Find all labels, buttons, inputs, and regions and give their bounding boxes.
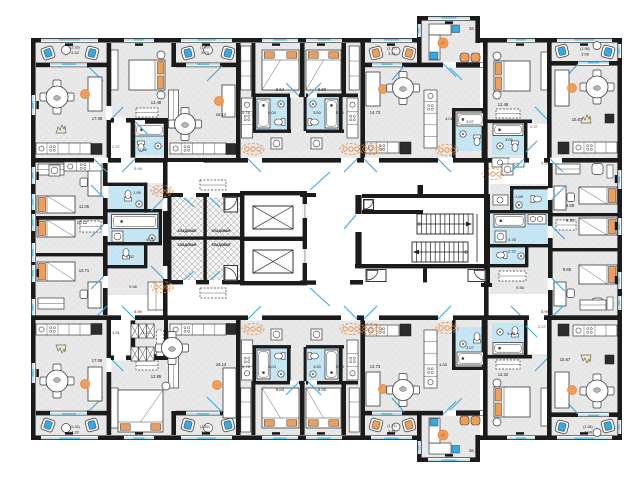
svg-text:3.07: 3.07 bbox=[466, 119, 475, 124]
svg-text:4.32: 4.32 bbox=[71, 430, 80, 435]
svg-text:1.91: 1.91 bbox=[112, 330, 121, 335]
svg-text:17.09: 17.09 bbox=[92, 358, 103, 363]
svg-text:5.78: 5.78 bbox=[242, 364, 251, 369]
svg-text:9.30: 9.30 bbox=[566, 218, 575, 223]
svg-text:1.99: 1.99 bbox=[133, 190, 142, 195]
svg-text:5.99: 5.99 bbox=[541, 161, 550, 166]
svg-text:5.45: 5.45 bbox=[336, 110, 345, 115]
svg-text:9.88: 9.88 bbox=[566, 203, 575, 208]
svg-text:5.99: 5.99 bbox=[541, 309, 550, 314]
svg-text:16.11: 16.11 bbox=[469, 26, 480, 31]
svg-text:3.78: 3.78 bbox=[201, 430, 210, 435]
svg-text:4.04: 4.04 bbox=[268, 110, 277, 115]
svg-text:8.80: 8.80 bbox=[318, 387, 327, 392]
svg-text:1.99: 1.99 bbox=[515, 194, 524, 199]
svg-text:(1.89): (1.89) bbox=[200, 46, 209, 50]
svg-text:4.08: 4.08 bbox=[445, 116, 454, 121]
svg-text:(1.98): (1.98) bbox=[580, 47, 589, 51]
svg-text:2.37: 2.37 bbox=[530, 124, 539, 129]
svg-text:4.76: 4.76 bbox=[508, 237, 517, 242]
svg-text:9.36: 9.36 bbox=[516, 285, 525, 290]
svg-text:16.14: 16.14 bbox=[216, 112, 227, 117]
svg-text:КЛАДОВАЯ: КЛАДОВАЯ bbox=[178, 243, 197, 247]
svg-text:12.32: 12.32 bbox=[498, 372, 509, 377]
svg-text:3.48: 3.48 bbox=[507, 331, 516, 336]
svg-text:3.06: 3.06 bbox=[505, 137, 514, 142]
svg-text:4.32: 4.32 bbox=[71, 50, 80, 55]
svg-text:10.71: 10.71 bbox=[79, 268, 90, 273]
svg-text:15.67: 15.67 bbox=[560, 357, 571, 362]
svg-text:3.41: 3.41 bbox=[388, 51, 397, 56]
svg-text:4.08: 4.08 bbox=[439, 362, 448, 367]
svg-text:5.99: 5.99 bbox=[134, 166, 143, 171]
svg-text:(1.71): (1.71) bbox=[387, 47, 396, 51]
svg-text:15.67: 15.67 bbox=[572, 117, 583, 122]
svg-text:(1.98): (1.98) bbox=[583, 425, 592, 429]
svg-text:2.27: 2.27 bbox=[538, 324, 547, 329]
svg-text:14.73: 14.73 bbox=[370, 364, 381, 369]
svg-text:9.36: 9.36 bbox=[129, 284, 138, 289]
svg-text:КЛАДОВАЯ: КЛАДОВАЯ bbox=[178, 229, 197, 233]
svg-text:12.48: 12.48 bbox=[498, 102, 509, 107]
svg-text:17.09: 17.09 bbox=[92, 116, 103, 121]
svg-text:2.37: 2.37 bbox=[112, 144, 121, 149]
svg-text:4.76: 4.76 bbox=[146, 237, 155, 242]
svg-text:(1.89): (1.89) bbox=[200, 425, 209, 429]
svg-text:(2.16): (2.16) bbox=[70, 46, 79, 50]
svg-text:9.85: 9.85 bbox=[563, 267, 572, 272]
svg-text:9.64: 9.64 bbox=[276, 87, 285, 92]
svg-text:(1.71): (1.71) bbox=[387, 424, 396, 428]
svg-text:11.05: 11.05 bbox=[79, 204, 90, 209]
svg-text:3.50: 3.50 bbox=[313, 110, 322, 115]
svg-text:16.11: 16.11 bbox=[469, 448, 480, 453]
svg-text:12.85: 12.85 bbox=[151, 374, 162, 379]
svg-text:5.76: 5.76 bbox=[242, 110, 251, 115]
svg-text:3.98: 3.98 bbox=[584, 430, 593, 435]
svg-text:3.32: 3.32 bbox=[142, 330, 151, 335]
svg-text:5.99: 5.99 bbox=[134, 309, 143, 314]
svg-text:10.12: 10.12 bbox=[77, 220, 88, 225]
svg-text:12.48: 12.48 bbox=[151, 100, 162, 105]
svg-text:16.14: 16.14 bbox=[216, 362, 227, 367]
svg-text:2.32: 2.32 bbox=[508, 249, 517, 254]
svg-text:КЛАДОВАЯ: КЛАДОВАЯ bbox=[212, 229, 231, 233]
svg-text:4.04: 4.04 bbox=[268, 364, 277, 369]
svg-text:КЛАДОВАЯ: КЛАДОВАЯ bbox=[212, 243, 231, 247]
svg-text:3.06: 3.06 bbox=[139, 147, 148, 152]
svg-text:8.80: 8.80 bbox=[318, 87, 327, 92]
svg-text:5.45: 5.45 bbox=[336, 364, 345, 369]
svg-text:3.41: 3.41 bbox=[388, 429, 397, 434]
svg-text:(2.16): (2.16) bbox=[70, 425, 79, 429]
svg-text:3.79: 3.79 bbox=[201, 50, 210, 55]
svg-text:14.73: 14.73 bbox=[370, 110, 381, 115]
svg-text:3.50: 3.50 bbox=[313, 364, 322, 369]
svg-text:3.98: 3.98 bbox=[581, 52, 590, 57]
svg-text:9.64: 9.64 bbox=[276, 387, 285, 392]
svg-text:2.32: 2.32 bbox=[126, 254, 135, 259]
svg-text:3.07: 3.07 bbox=[466, 345, 475, 350]
